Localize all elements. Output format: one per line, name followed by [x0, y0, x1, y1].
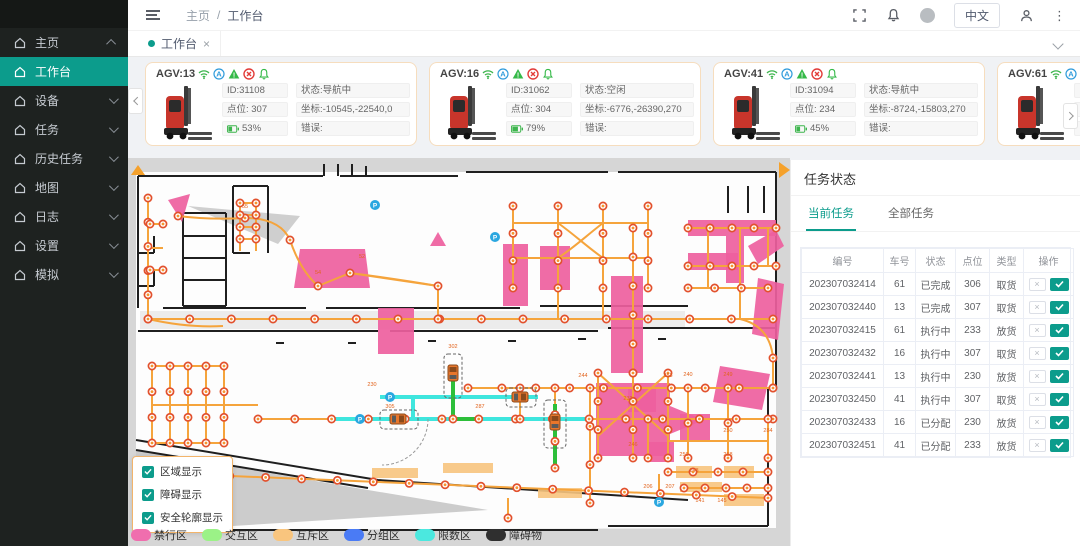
cards-prev-button[interactable]: [128, 88, 143, 114]
agv-id: ID:31108: [222, 83, 288, 98]
chevron-down-icon: [109, 152, 119, 162]
svg-text:54: 54: [315, 270, 321, 276]
sidebar-item-0[interactable]: 主页: [0, 28, 128, 57]
legend-item-3: 分组区: [344, 527, 400, 543]
cancel-task-button[interactable]: ×: [1029, 393, 1046, 406]
svg-text:55: 55: [242, 204, 248, 210]
tab-bar: 工作台 ×: [128, 30, 1080, 57]
confirm-task-button[interactable]: [1050, 324, 1069, 337]
home-icon: [14, 66, 26, 78]
agv-battery: 45%: [790, 121, 856, 136]
agv-battery: 79%: [506, 121, 572, 136]
legend-swatch: [202, 529, 222, 541]
task-no: 202307032414: [802, 273, 884, 296]
task-status-panel: 任务状态 当前任务全部任务 编号车号状态点位类型操作 2023070324146…: [790, 160, 1080, 546]
task-point: 306: [956, 273, 990, 296]
task-type: 取货: [990, 273, 1024, 296]
svg-text:230: 230: [367, 382, 376, 388]
svg-text:253: 253: [663, 373, 672, 379]
agv-cards-row: AGV:13A!ID:31108点位: 30753%状态:导航中坐标:-1054…: [145, 62, 1080, 150]
language-button[interactable]: 中文: [954, 3, 1000, 28]
confirm-task-button[interactable]: [1050, 416, 1069, 429]
auto-mode-icon: A: [213, 68, 225, 80]
agv-id: ID:31062: [506, 83, 572, 98]
table-row: 20230703241461已完成306取货×: [802, 273, 1074, 296]
sidebar-item-5[interactable]: 地图: [0, 173, 128, 202]
svg-text:141: 141: [695, 498, 704, 504]
col-header-4: 类型: [990, 249, 1024, 273]
task-car: 41: [884, 434, 916, 457]
panel-title: 任务状态: [791, 160, 1080, 196]
cancel-task-button[interactable]: ×: [1029, 301, 1046, 314]
task-no: 202307032450: [802, 388, 884, 411]
battery-icon: [795, 125, 807, 133]
home-icon: [14, 37, 26, 49]
error-circle-icon: [527, 68, 539, 80]
task-status: 已完成: [916, 273, 956, 296]
confirm-task-button[interactable]: [1050, 278, 1069, 291]
alarm-bell-icon: [542, 68, 554, 80]
fullscreen-icon[interactable]: [852, 8, 867, 23]
display-checkbox-0[interactable]: 区域显示: [142, 464, 223, 479]
svg-text:P: P: [388, 394, 393, 401]
svg-text:240: 240: [683, 372, 692, 378]
display-checkbox-1[interactable]: 障碍显示: [142, 487, 223, 502]
svg-text:A: A: [500, 70, 506, 79]
table-row: 20230703245141已分配233放货×: [802, 434, 1074, 457]
agv-status: 状态:导航中: [296, 83, 410, 98]
task-no: 202307032440: [802, 296, 884, 319]
home-icon: [14, 153, 26, 165]
error-circle-icon: [243, 68, 255, 80]
task-car: 13: [884, 365, 916, 388]
svg-text:207: 207: [665, 484, 674, 490]
task-car: 13: [884, 296, 916, 319]
collapse-cards-arrow-icon[interactable]: [131, 165, 145, 175]
home-icon: [14, 240, 26, 252]
more-dots-icon[interactable]: ⋮: [1053, 9, 1066, 22]
sidebar: 主页工作台设备任务历史任务地图日志设置模拟: [0, 0, 128, 546]
sidebar-item-6[interactable]: 日志: [0, 202, 128, 231]
svg-text:246: 246: [628, 442, 637, 448]
task-type: 放货: [990, 319, 1024, 342]
alarm-bell-icon: [258, 68, 270, 80]
svg-text:250: 250: [723, 428, 732, 434]
legend-item-4: 限数区: [415, 527, 471, 543]
agv-id: [1074, 83, 1080, 98]
home-icon: [14, 269, 26, 281]
battery-icon: [227, 125, 239, 133]
svg-text:305: 305: [385, 404, 394, 410]
svg-text:A: A: [784, 70, 790, 79]
task-status: 执行中: [916, 342, 956, 365]
task-status: 已分配: [916, 434, 956, 457]
task-tab-0[interactable]: 当前任务: [806, 196, 856, 231]
svg-text:P: P: [493, 234, 498, 241]
tab-workbench[interactable]: 工作台 ×: [138, 31, 221, 56]
cancel-task-button[interactable]: ×: [1029, 347, 1046, 360]
legend-swatch: [344, 529, 364, 541]
task-status: 执行中: [916, 365, 956, 388]
svg-text:145: 145: [717, 498, 726, 504]
svg-text:!: !: [517, 72, 519, 79]
home-icon: [14, 211, 26, 223]
confirm-task-button[interactable]: [1050, 393, 1069, 406]
bell-icon[interactable]: [886, 8, 901, 23]
sidebar-menu: 主页工作台设备任务历史任务地图日志设置模拟: [0, 28, 128, 289]
cancel-task-button[interactable]: ×: [1029, 416, 1046, 429]
task-car: 41: [884, 388, 916, 411]
legend-swatch: [273, 529, 293, 541]
agv-point: 点位: 307: [222, 102, 288, 117]
svg-text:P: P: [373, 202, 378, 209]
chevron-down-icon: [109, 268, 119, 278]
task-point: 233: [956, 434, 990, 457]
agv-error: 错误:: [296, 121, 410, 136]
col-header-0: 编号: [802, 249, 884, 273]
chevron-down-icon: [109, 210, 119, 220]
legend-item-1: 交互区: [202, 527, 258, 543]
task-no: 202307032451: [802, 434, 884, 457]
wifi-icon: [1050, 68, 1062, 80]
task-status: 已分配: [916, 411, 956, 434]
agv-card-0[interactable]: AGV:13A!ID:31108点位: 30753%状态:导航中坐标:-1054…: [145, 62, 417, 146]
task-type: 取货: [990, 296, 1024, 319]
auto-mode-icon: A: [781, 68, 793, 80]
battery-icon: [511, 125, 523, 133]
chevron-down-icon: [109, 239, 119, 249]
agv-id: ID:31094: [790, 83, 856, 98]
tab-close-icon[interactable]: ×: [203, 37, 210, 51]
sidebar-item-4[interactable]: 历史任务: [0, 144, 128, 173]
col-header-5: 操作: [1024, 249, 1074, 273]
agv-name: AGV:41: [724, 68, 763, 80]
chevron-up-icon: [106, 39, 116, 49]
col-header-2: 状态: [916, 249, 956, 273]
task-table: 编号车号状态点位类型操作 20230703241461已完成306取货×2023…: [801, 248, 1074, 457]
warning-triangle-icon: !: [512, 68, 524, 80]
svg-text:302: 302: [448, 344, 457, 350]
agv-status: 状态:导航中: [864, 83, 978, 98]
task-status: 执行中: [916, 319, 956, 342]
col-header-3: 点位: [956, 249, 990, 273]
agv-name: AGV:16: [440, 68, 479, 80]
svg-text:148: 148: [689, 468, 698, 474]
logo-area: [0, 0, 128, 28]
svg-text:!: !: [233, 72, 235, 79]
svg-text:!: !: [801, 72, 803, 79]
col-header-1: 车号: [884, 249, 916, 273]
svg-text:P: P: [657, 499, 662, 506]
agv-battery: 53%: [222, 121, 288, 136]
agv-image: [1010, 84, 1066, 142]
svg-text:A: A: [216, 70, 222, 79]
wifi-icon: [198, 68, 210, 80]
agv-card-1[interactable]: AGV:16A!ID:31062点位: 30479%状态:空闲坐标:-6776,…: [429, 62, 701, 146]
table-row: 20230703243216执行中307取货×: [802, 342, 1074, 365]
cancel-task-button[interactable]: ×: [1029, 439, 1046, 452]
legend-swatch: [131, 529, 151, 541]
sidebar-item-7[interactable]: 设置: [0, 231, 128, 260]
agv-point: 点位: 234: [790, 102, 856, 117]
map-display-options: 区域显示障碍显示安全轮廓显示: [132, 456, 233, 533]
breadcrumb-current: 工作台: [227, 7, 263, 24]
legend-item-5: 障碍物: [486, 527, 542, 543]
agv-name: AGV:13: [156, 68, 195, 80]
agv-coord: 坐标:-8724,-15803,270: [864, 102, 978, 117]
wifi-icon: [482, 68, 494, 80]
table-row: 20230703245041执行中307取货×: [802, 388, 1074, 411]
task-type: 放货: [990, 411, 1024, 434]
checkbox-checked-icon[interactable]: [142, 466, 154, 478]
task-car: 61: [884, 319, 916, 342]
task-type: 取货: [990, 342, 1024, 365]
task-point: 307: [956, 296, 990, 319]
task-type: 取货: [990, 388, 1024, 411]
agv-name: AGV:61: [1008, 68, 1047, 80]
task-status: 已完成: [916, 296, 956, 319]
home-icon: [14, 95, 26, 107]
sidebar-item-3[interactable]: 任务: [0, 115, 128, 144]
top-header: 主页 / 工作台 中文 ⋮: [128, 0, 1080, 30]
task-type: 放货: [990, 365, 1024, 388]
avatar[interactable]: [920, 8, 935, 23]
svg-text:244: 244: [578, 373, 587, 379]
checkbox-checked-icon[interactable]: [142, 512, 154, 524]
svg-text:284: 284: [763, 428, 772, 434]
task-tabs: 当前任务全部任务: [791, 196, 1080, 232]
task-type: 放货: [990, 434, 1024, 457]
svg-text:A: A: [1068, 70, 1074, 79]
agv-coord: 坐标:-6776,-26390,270: [580, 102, 694, 117]
agv-status: 状态:空闲: [580, 83, 694, 98]
agv-image: [442, 84, 498, 142]
home-icon: [14, 124, 26, 136]
breadcrumb-home[interactable]: 主页: [186, 7, 210, 24]
cards-next-button[interactable]: [1063, 103, 1078, 129]
map-legend: 禁行区交互区互斥区分组区限数区障碍物: [131, 527, 542, 543]
task-no: 202307032441: [802, 365, 884, 388]
active-tab-dot: [148, 40, 155, 47]
chevron-down-icon: [109, 94, 119, 104]
task-no: 202307032432: [802, 342, 884, 365]
wifi-icon: [766, 68, 778, 80]
task-tab-1[interactable]: 全部任务: [886, 196, 936, 231]
task-no: 202307032433: [802, 411, 884, 434]
collapse-panel-arrow-icon[interactable]: [779, 162, 790, 178]
task-point: 230: [956, 365, 990, 388]
task-point: 307: [956, 388, 990, 411]
svg-text:287: 287: [475, 404, 484, 410]
breadcrumb: 主页 / 工作台: [186, 7, 263, 24]
svg-text:258: 258: [723, 452, 732, 458]
task-status: 执行中: [916, 388, 956, 411]
home-icon: [14, 182, 26, 194]
auto-mode-icon: A: [1065, 68, 1077, 80]
auto-mode-icon: A: [497, 68, 509, 80]
table-row: 20230703243316已分配230放货×: [802, 411, 1074, 434]
agv-coord: 坐标:-10545,-22540,0: [296, 102, 410, 117]
sidebar-item-8[interactable]: 模拟: [0, 260, 128, 289]
warning-triangle-icon: !: [228, 68, 240, 80]
tab-list-chevron-icon[interactable]: [1052, 38, 1063, 49]
sidebar-item-1[interactable]: 工作台: [0, 57, 128, 86]
agv-point: 点位: 304: [506, 102, 572, 117]
agv-image: [158, 84, 214, 142]
agv-error: 错误:: [580, 121, 694, 136]
task-car: 61: [884, 273, 916, 296]
table-row: 20230703244013已完成307取货×: [802, 296, 1074, 319]
warning-triangle-icon: !: [796, 68, 808, 80]
agv-image: [726, 84, 782, 142]
hamburger-menu-icon[interactable]: [146, 10, 160, 20]
confirm-task-button[interactable]: [1050, 347, 1069, 360]
table-row: 20230703241561执行中233放货×: [802, 319, 1074, 342]
task-car: 16: [884, 342, 916, 365]
svg-text:256: 256: [679, 452, 688, 458]
person-icon[interactable]: [1019, 8, 1034, 23]
legend-swatch: [486, 529, 506, 541]
error-circle-icon: [811, 68, 823, 80]
task-point: 307: [956, 342, 990, 365]
checkbox-checked-icon[interactable]: [142, 489, 154, 501]
cancel-task-button[interactable]: ×: [1029, 370, 1046, 383]
svg-text:232: 232: [623, 396, 632, 402]
table-row: 20230703244113执行中230放货×: [802, 365, 1074, 388]
task-point: 233: [956, 319, 990, 342]
svg-text:249: 249: [723, 372, 732, 378]
legend-item-0: 禁行区: [131, 527, 187, 543]
confirm-task-button[interactable]: [1050, 301, 1069, 314]
sidebar-item-2[interactable]: 设备: [0, 86, 128, 115]
confirm-task-button[interactable]: [1050, 370, 1069, 383]
alarm-bell-icon: [826, 68, 838, 80]
confirm-task-button[interactable]: [1050, 439, 1069, 452]
task-point: 230: [956, 411, 990, 434]
svg-text:206: 206: [643, 484, 652, 490]
svg-text:P: P: [358, 416, 363, 423]
legend-item-2: 互斥区: [273, 527, 329, 543]
agv-card-2[interactable]: AGV:41A!ID:31094点位: 23445%状态:导航中坐标:-8724…: [713, 62, 985, 146]
task-no: 202307032415: [802, 319, 884, 342]
agv-error: 错误:: [864, 121, 978, 136]
display-checkbox-2[interactable]: 安全轮廓显示: [142, 510, 223, 525]
chevron-down-icon: [109, 181, 119, 191]
chevron-down-icon: [109, 123, 119, 133]
cancel-task-button[interactable]: ×: [1029, 278, 1046, 291]
svg-text:52: 52: [359, 254, 365, 260]
legend-swatch: [415, 529, 435, 541]
cancel-task-button[interactable]: ×: [1029, 324, 1046, 337]
task-car: 16: [884, 411, 916, 434]
